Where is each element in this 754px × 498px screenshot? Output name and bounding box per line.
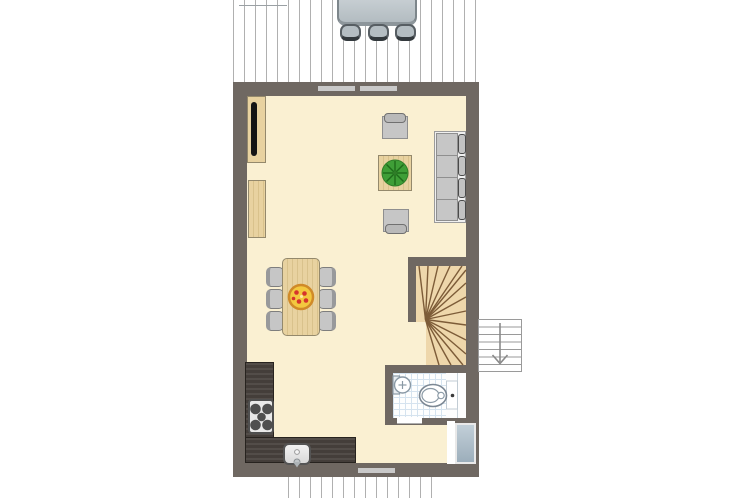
deck-edge-line [239,5,287,6]
dining-chair [318,289,336,309]
outdoor-table [337,0,417,26]
coffee-table [378,155,412,191]
sofa-seats [436,133,458,221]
stair-wall-left [408,257,416,322]
sofa-back-cushion [458,178,466,198]
sofa-back-cushion [458,134,466,154]
toilet-cistern-area [446,373,466,418]
terrace-deck-bottom [278,477,438,498]
sofa-back-cushion [458,156,466,176]
kitchen-sink [283,443,311,465]
armchair-bottom-backrest [385,224,407,234]
winder-staircase-lower [426,322,466,365]
bathroom-wall-left [385,365,393,425]
outdoor-chair-3 [395,24,416,41]
cistern-divider [457,373,458,418]
entrance-door-frame [447,421,455,464]
outdoor-chair-1 [340,24,361,41]
sofa-back-cushion [458,200,466,220]
window-top-right [360,86,397,91]
outdoor-chair-2 [368,24,389,41]
dining-table [282,258,320,336]
bathroom-wall-top [385,365,466,373]
armchair-top-backrest [384,113,406,123]
external-staircase [478,319,522,372]
sideboard [248,180,266,238]
window-bottom [358,468,395,473]
window-top-left [318,86,355,91]
floor-plan [0,0,754,498]
winder-staircase-upper [416,266,466,322]
stove [248,399,274,434]
stair-wall-top [408,257,466,266]
entrance-door [455,423,476,464]
dining-chair [318,267,336,287]
bathroom-door [397,417,422,424]
tv-screen [251,102,257,156]
dining-chair [318,311,336,331]
